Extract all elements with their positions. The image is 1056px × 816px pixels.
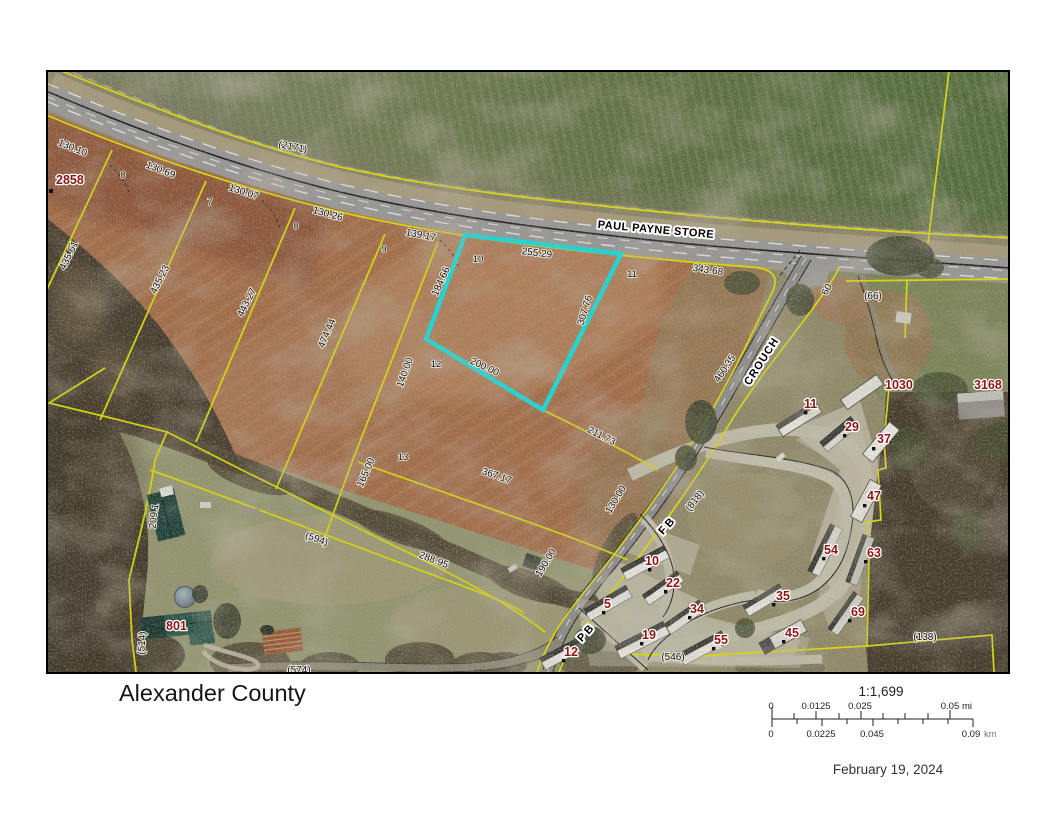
- svg-text:63: 63: [867, 546, 881, 560]
- svg-text:0: 0: [768, 701, 773, 712]
- svg-text:11: 11: [804, 397, 817, 411]
- svg-text:10: 10: [473, 254, 484, 265]
- svg-text:12: 12: [431, 359, 442, 370]
- svg-text:0.025: 0.025: [848, 701, 872, 712]
- svg-text:35: 35: [776, 589, 790, 603]
- svg-text:12: 12: [564, 645, 578, 659]
- svg-text:55: 55: [714, 633, 728, 647]
- svg-text:0.0125: 0.0125: [801, 701, 830, 712]
- svg-text:34: 34: [690, 602, 704, 616]
- svg-text:0.045: 0.045: [860, 729, 884, 740]
- svg-text:29: 29: [845, 420, 859, 434]
- svg-text:11: 11: [627, 269, 637, 280]
- svg-text:54: 54: [824, 543, 838, 557]
- svg-text:8: 8: [293, 221, 298, 232]
- svg-text:(546): (546): [661, 652, 684, 663]
- svg-text:45: 45: [785, 626, 799, 640]
- svg-text:(514): (514): [136, 631, 148, 655]
- svg-text:1:1,699: 1:1,699: [858, 684, 903, 699]
- svg-text:8: 8: [120, 170, 125, 181]
- svg-text:47: 47: [867, 489, 881, 503]
- svg-text:(66): (66): [864, 291, 882, 302]
- svg-text:February 19, 2024: February 19, 2024: [833, 762, 944, 777]
- svg-text:0.09: 0.09: [962, 729, 981, 740]
- svg-text:13: 13: [398, 452, 409, 463]
- svg-text:(138): (138): [913, 632, 936, 643]
- svg-text:801: 801: [166, 619, 187, 633]
- svg-text:mi: mi: [962, 701, 972, 712]
- svg-text:2858: 2858: [56, 173, 84, 187]
- svg-text:3168: 3168: [974, 378, 1002, 392]
- svg-text:9: 9: [381, 244, 386, 255]
- svg-text:5: 5: [604, 597, 611, 611]
- svg-text:Alexander County: Alexander County: [119, 680, 306, 706]
- svg-text:0.0225: 0.0225: [806, 729, 835, 740]
- svg-text:37: 37: [877, 432, 891, 446]
- svg-text:1030: 1030: [885, 378, 913, 392]
- svg-text:10: 10: [645, 554, 659, 568]
- svg-text:7: 7: [207, 197, 212, 208]
- svg-text:69: 69: [851, 605, 865, 619]
- svg-text:km: km: [984, 729, 997, 740]
- svg-text:0: 0: [768, 729, 773, 740]
- svg-text:19: 19: [642, 628, 656, 642]
- svg-text:22: 22: [666, 576, 680, 590]
